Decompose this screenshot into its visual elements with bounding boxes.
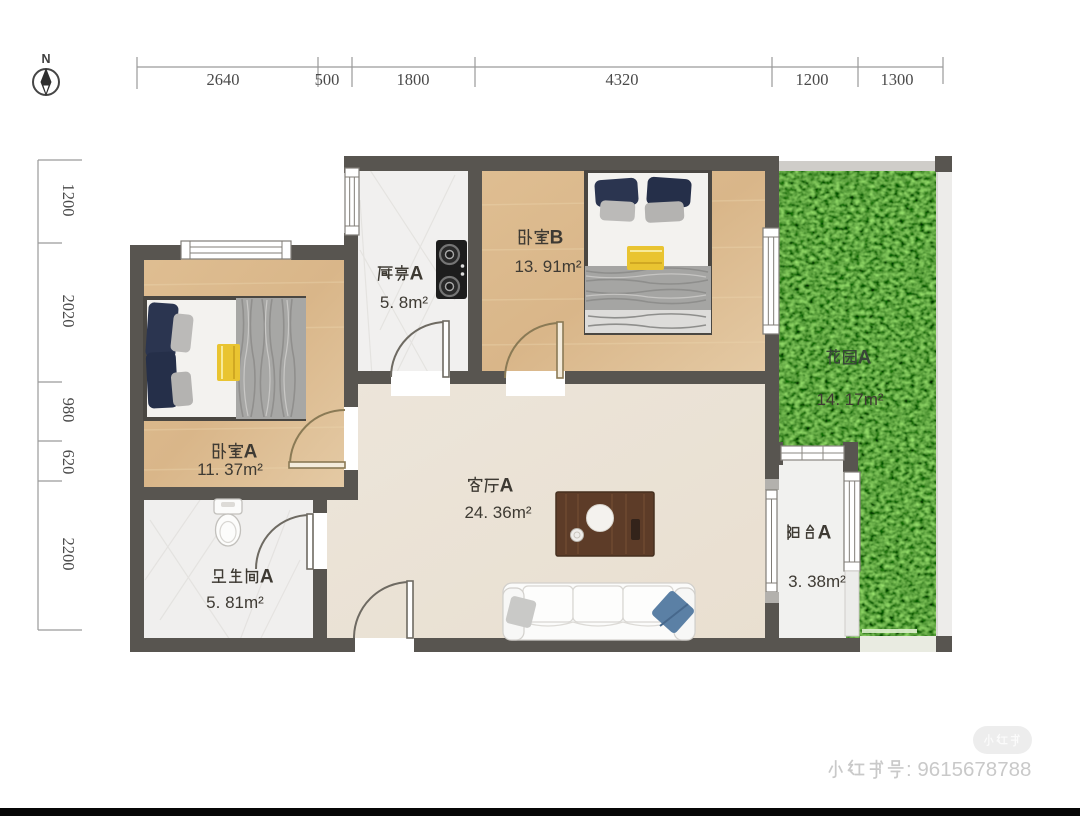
- svg-text:1200: 1200: [59, 184, 78, 217]
- svg-text:A: A: [858, 348, 872, 369]
- svg-text:2020: 2020: [59, 295, 78, 328]
- svg-text:980: 980: [59, 398, 78, 423]
- svg-text:B: B: [550, 228, 564, 249]
- svg-text:A: A: [500, 476, 514, 497]
- svg-text:2200: 2200: [59, 538, 78, 571]
- svg-text:13. 91m²: 13. 91m²: [514, 257, 581, 276]
- svg-text:5. 81m²: 5. 81m²: [206, 593, 264, 612]
- svg-text:A: A: [410, 264, 424, 285]
- svg-text:620: 620: [59, 450, 78, 475]
- svg-text:1300: 1300: [881, 70, 914, 89]
- svg-text:3. 38m²: 3. 38m²: [788, 572, 846, 591]
- svg-text:: 9615678788: : 9615678788: [906, 758, 1031, 781]
- svg-text:2640: 2640: [207, 70, 240, 89]
- svg-text:1800: 1800: [397, 70, 430, 89]
- svg-text:5. 8m²: 5. 8m²: [380, 293, 429, 312]
- svg-text:4320: 4320: [606, 70, 639, 89]
- svg-text:24. 36m²: 24. 36m²: [464, 503, 531, 522]
- svg-text:11. 37m²: 11. 37m²: [197, 460, 263, 479]
- svg-text:1200: 1200: [796, 70, 829, 89]
- svg-text:N: N: [41, 52, 50, 66]
- svg-text:A: A: [818, 523, 832, 544]
- svg-text:A: A: [260, 567, 274, 588]
- svg-text:500: 500: [315, 70, 340, 89]
- svg-text:14. 17m²: 14. 17m²: [816, 390, 883, 409]
